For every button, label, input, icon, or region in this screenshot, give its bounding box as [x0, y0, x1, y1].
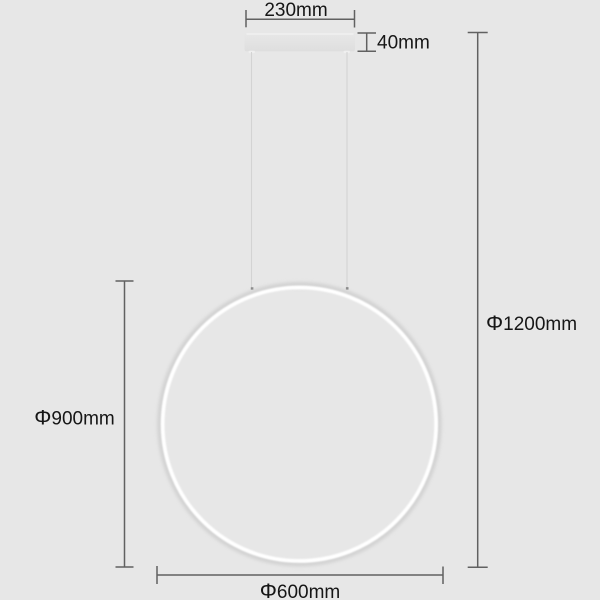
svg-text:40mm: 40mm: [377, 33, 430, 54]
svg-text:Φ900mm: Φ900mm: [34, 406, 115, 430]
svg-text:Φ600mm: Φ600mm: [260, 579, 341, 600]
svg-text:Φ1200mm: Φ1200mm: [486, 311, 577, 335]
svg-text:230mm: 230mm: [264, 0, 327, 21]
